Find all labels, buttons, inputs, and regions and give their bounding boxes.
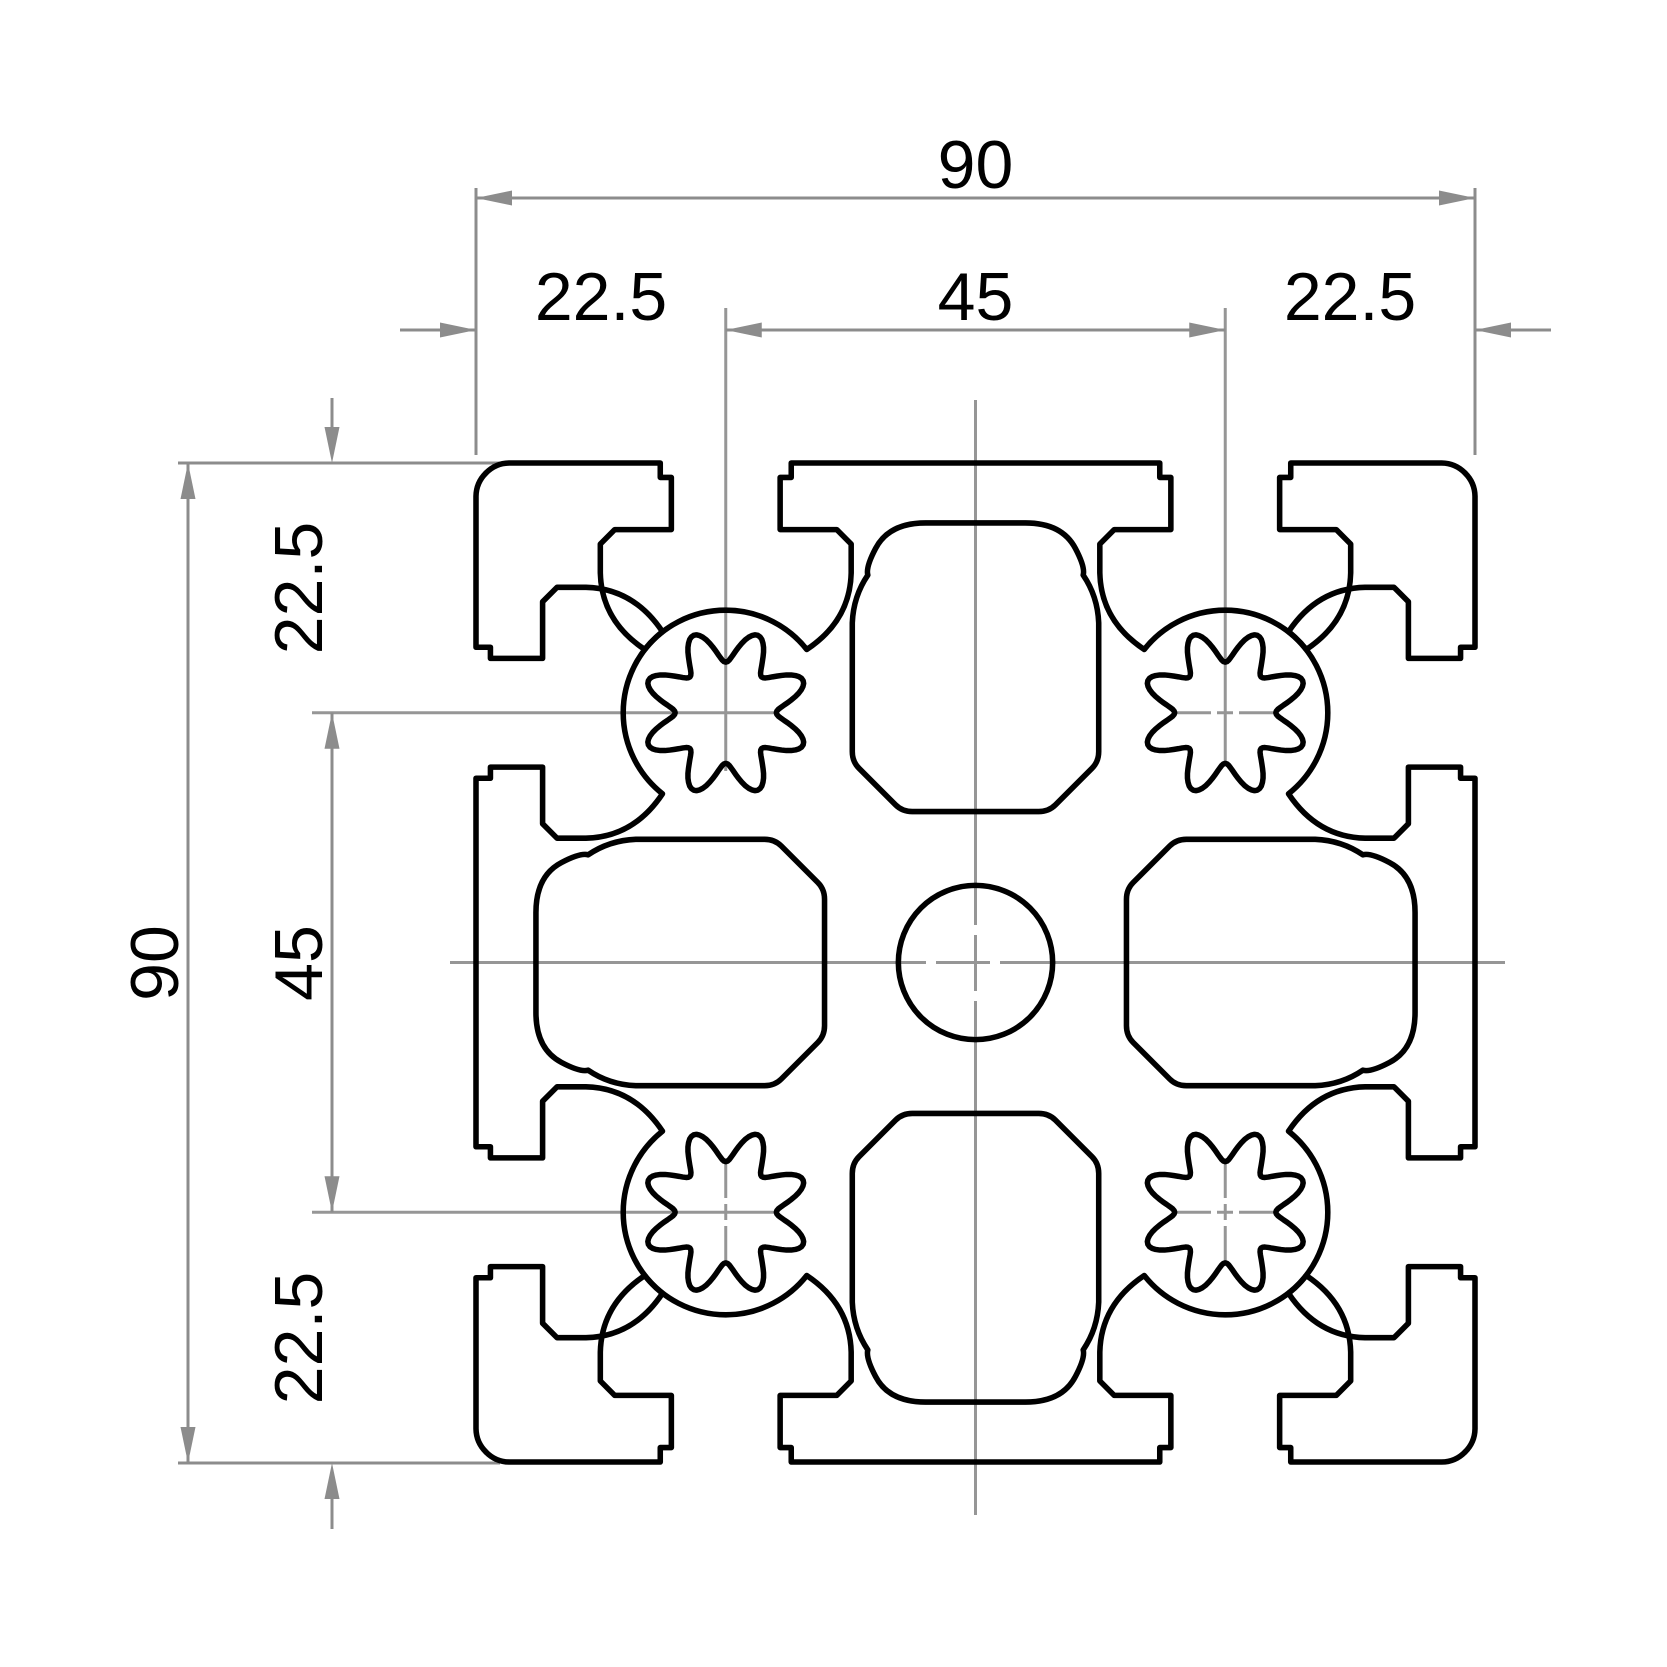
dim-arrow — [440, 323, 476, 338]
dim-text-22-5-top-right: 22.5 — [1284, 259, 1416, 335]
dim-text-90-left: 90 — [117, 925, 193, 1001]
dimension-chain-left: 22.5 45 22.5 — [261, 398, 340, 1529]
dimension-90-top: 90 — [476, 127, 1475, 206]
dim-text-90-top: 90 — [938, 127, 1014, 203]
dim-arrow — [325, 1176, 340, 1212]
centerlines — [312, 308, 1505, 1515]
dim-arrow — [181, 1427, 196, 1463]
profile-technical-drawing: 90 22.5 45 22.5 90 — [0, 0, 1667, 1667]
dim-text-22-5-left-bottom: 22.5 — [261, 1272, 337, 1404]
dimension-chain-top: 22.5 45 22.5 — [400, 259, 1551, 338]
dim-text-45-top: 45 — [938, 259, 1014, 335]
dim-arrow — [325, 1463, 340, 1499]
dim-text-22-5-left-top: 22.5 — [261, 522, 337, 654]
dim-arrow — [726, 323, 762, 338]
dim-arrow — [325, 713, 340, 749]
dim-arrow — [1189, 323, 1225, 338]
dim-text-45-left: 45 — [261, 925, 337, 1001]
dimension-90-left: 90 — [117, 463, 196, 1463]
drawing-page: 90 22.5 45 22.5 90 — [0, 0, 1667, 1667]
dim-arrow — [476, 191, 512, 206]
dim-text-22-5-top-left: 22.5 — [535, 259, 667, 335]
dim-arrow — [1439, 191, 1475, 206]
dimensions: 90 22.5 45 22.5 90 — [117, 127, 1551, 1529]
dim-arrow — [1475, 323, 1511, 338]
dim-arrow — [325, 427, 340, 463]
dim-arrow — [181, 463, 196, 499]
